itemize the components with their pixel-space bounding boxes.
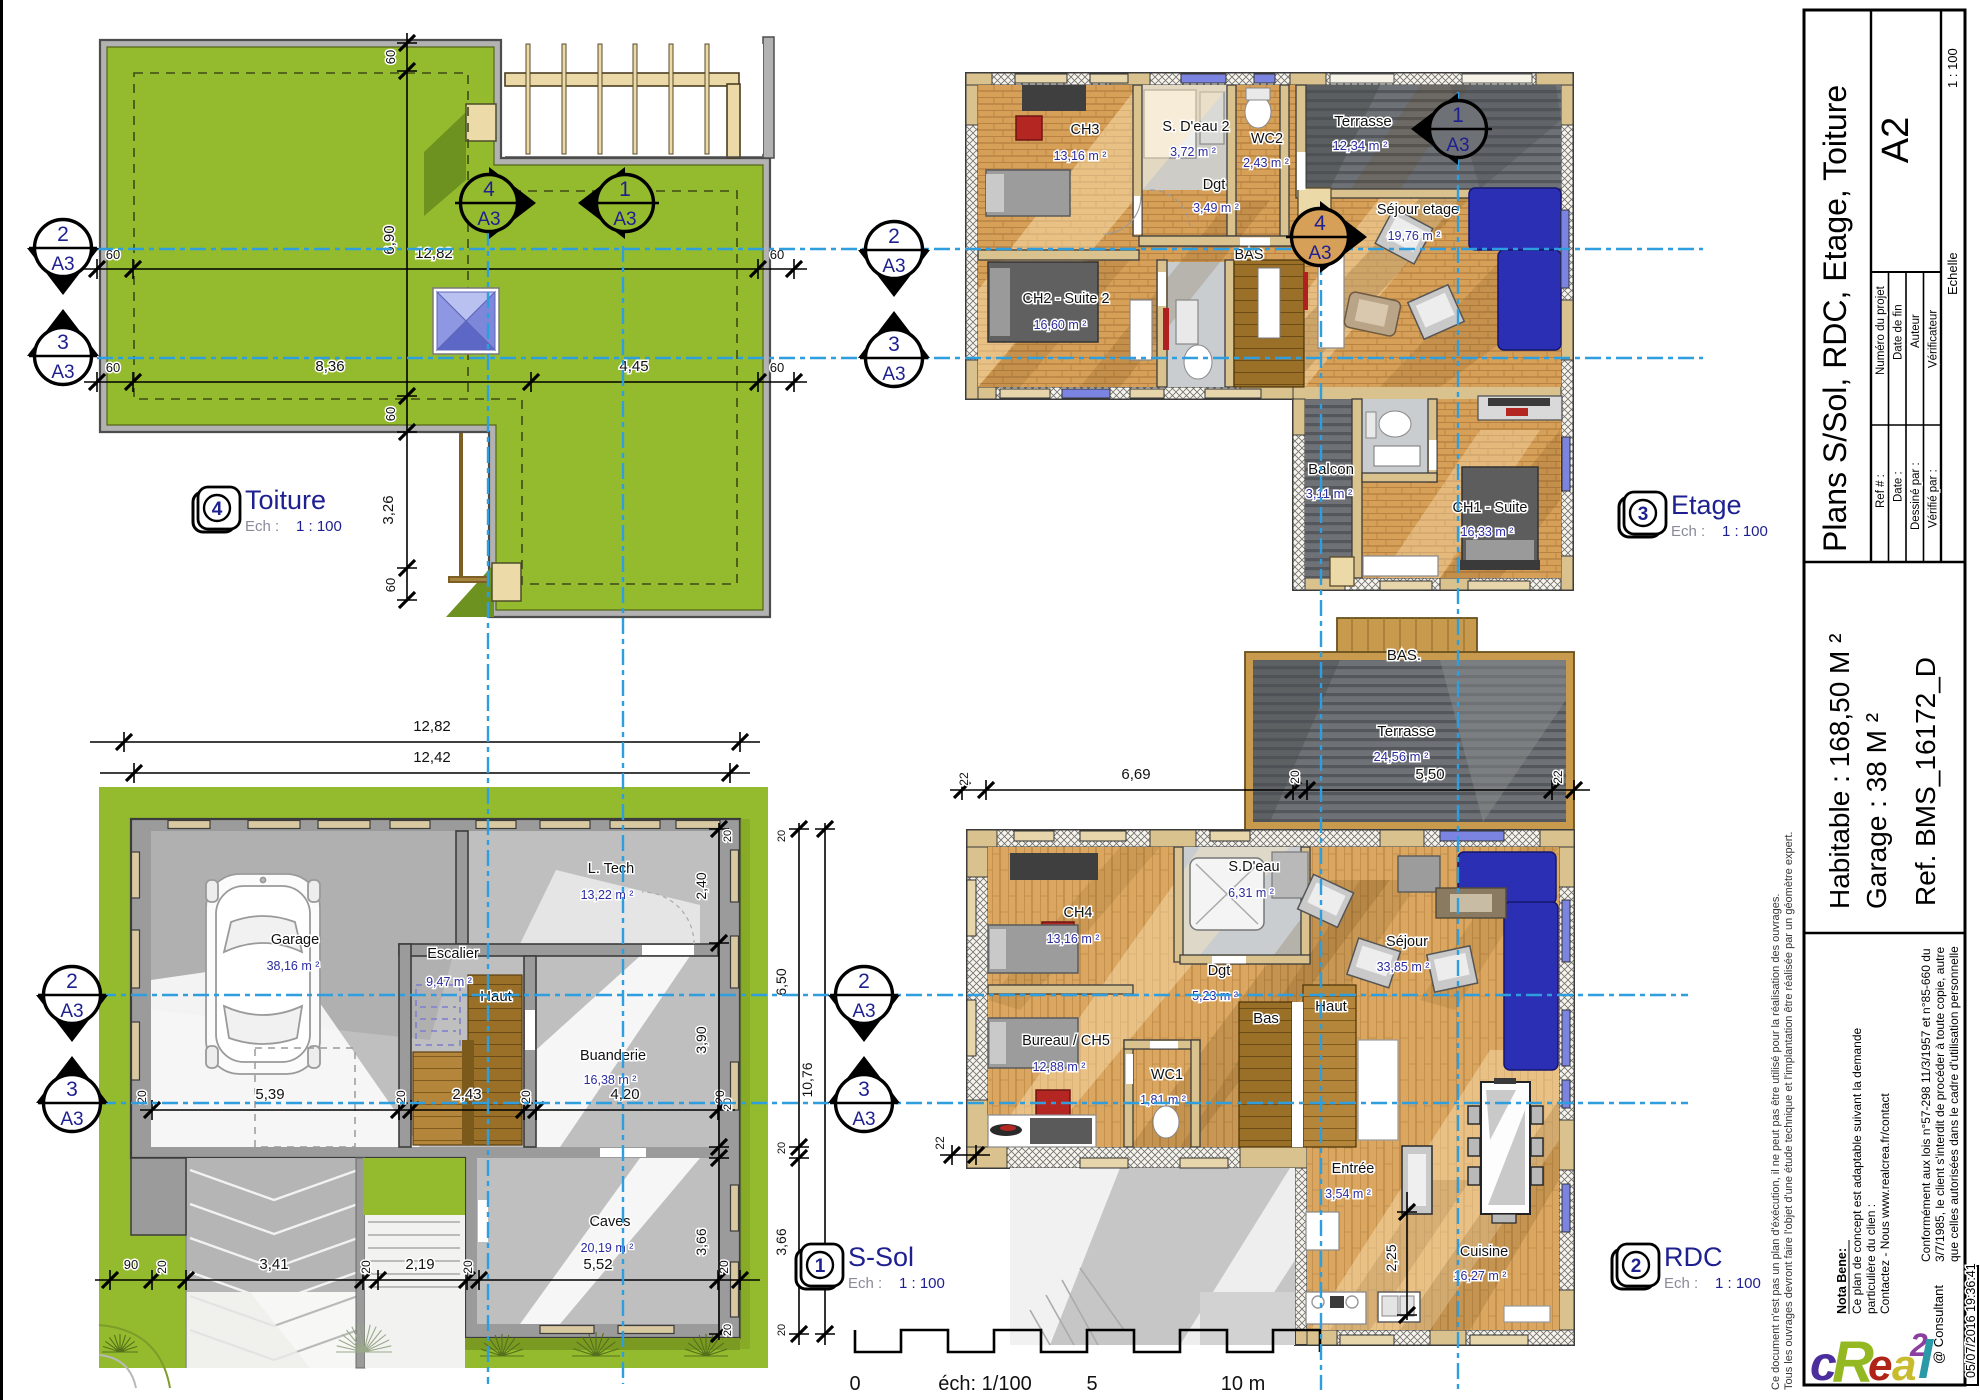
svg-text:Date de fin: Date de fin [1893,304,1905,360]
svg-text:2: 2 [66,970,78,993]
svg-text:Toiture: Toiture [245,485,326,515]
svg-text:3: 3 [888,333,900,356]
svg-text:20,19 m ²: 20,19 m ² [581,1241,634,1255]
svg-text:3,41: 3,41 [259,1256,288,1273]
svg-text:A3: A3 [1446,135,1469,156]
svg-text:Cuisine: Cuisine [1460,1244,1508,1260]
svg-text:16,33 m ²: 16,33 m ² [1461,525,1514,539]
svg-text:Terrasse: Terrasse [1377,723,1435,740]
svg-text:2,40: 2,40 [693,872,709,899]
svg-text:2,43: 2,43 [452,1086,481,1103]
svg-text:Vérifié par :: Vérifié par : [1928,469,1940,528]
svg-text:60: 60 [770,360,784,375]
svg-text:1: 1 [815,1256,826,1277]
svg-text:3,11 m ²: 3,11 m ² [1306,486,1353,501]
svg-text:Buanderie: Buanderie [580,1048,646,1064]
svg-text:2: 2 [888,225,900,248]
svg-text:Bureau / CH5: Bureau / CH5 [1022,1033,1110,1049]
svg-text:13,22 m ²: 13,22 m ² [581,888,634,902]
svg-text:Habitable : 168,50 M ²: Habitable : 168,50 M ² [1824,634,1855,910]
svg-text:A3: A3 [613,209,636,230]
svg-text:Ce plan de concept est adaptab: Ce plan de concept est adaptable suivant… [1850,1027,1864,1314]
svg-text:A3: A3 [852,1109,875,1130]
svg-text:12,34 m ²: 12,34 m ² [1333,138,1389,153]
svg-text:4: 4 [483,178,495,201]
svg-text:20: 20 [776,1324,788,1336]
svg-text:3,90: 3,90 [693,1026,709,1053]
svg-text:A3: A3 [852,1001,875,1022]
svg-text:Bas: Bas [1253,1010,1279,1027]
svg-text:4: 4 [212,499,223,520]
svg-text:Numéro du projet: Numéro du projet [1875,285,1887,375]
svg-text:22: 22 [933,1136,947,1150]
svg-text:Garage : 38 M ²: Garage : 38 M ² [1861,713,1892,909]
svg-text:que celles autorisées dans le: que celles autorisées dans le cadre d'ut… [1947,946,1961,1262]
svg-text:20: 20 [776,1142,788,1154]
svg-text:A3: A3 [51,362,74,383]
svg-text:A2: A2 [1875,117,1917,163]
svg-text:A3: A3 [60,1109,83,1130]
svg-text:Escalier: Escalier [427,946,479,962]
svg-text:3: 3 [66,1078,78,1101]
svg-text:Echelle: Echelle [1945,252,1960,295]
svg-text:4: 4 [1314,212,1326,235]
svg-text:22: 22 [1551,770,1565,784]
svg-text:A3: A3 [51,254,74,275]
svg-text:3,66: 3,66 [773,1228,789,1255]
svg-text:6,90: 6,90 [381,225,398,254]
svg-text:BAS.: BAS. [1387,647,1421,664]
svg-text:20: 20 [359,1260,373,1274]
svg-text:6,50: 6,50 [773,968,789,995]
svg-text:16,60 m ²: 16,60 m ² [1034,318,1087,332]
svg-text:Séjour: Séjour [1386,934,1428,950]
svg-text:Date :: Date : [1893,471,1905,502]
svg-text:16,38 m ²: 16,38 m ² [584,1073,637,1087]
svg-text:12,88 m ²: 12,88 m ² [1033,1060,1086,1074]
svg-text:Dgt: Dgt [1203,177,1226,193]
svg-text:05/07/2016 19:36:41: 05/07/2016 19:36:41 [1964,1263,1978,1378]
svg-text:WC2: WC2 [1251,131,1283,147]
svg-text:24,56 m ²: 24,56 m ² [1374,749,1430,764]
svg-text:0: 0 [849,1373,860,1395]
svg-text:2,43 m ²: 2,43 m ² [1243,156,1289,170]
svg-text:3: 3 [57,331,69,354]
svg-text:6,69: 6,69 [1121,766,1150,783]
svg-text:2: 2 [858,970,870,993]
svg-text:1 : 100: 1 : 100 [1715,1275,1761,1292]
svg-text:20: 20 [461,1260,475,1274]
svg-text:19,76 m ²: 19,76 m ² [1388,229,1441,243]
svg-text:@ Consultant: @ Consultant [1931,1285,1946,1364]
svg-text:3,66: 3,66 [693,1228,709,1255]
svg-text:Ech :: Ech : [848,1275,882,1292]
svg-text:A3: A3 [882,364,905,385]
svg-text:Balcon: Balcon [1308,461,1354,478]
svg-text:60: 60 [106,360,120,375]
svg-text:3: 3 [1638,504,1649,525]
svg-text:8,36: 8,36 [315,358,344,375]
svg-text:L. Tech: L. Tech [588,861,635,877]
svg-text:CH1 - Suite: CH1 - Suite [1453,500,1528,516]
svg-text:particulière du clien :: particulière du clien : [1864,1204,1878,1314]
svg-text:Garage: Garage [271,932,319,948]
svg-text:3: 3 [858,1078,870,1101]
svg-text:Ech :: Ech : [1671,523,1705,540]
svg-text:22: 22 [957,772,971,786]
svg-text:1 : 100: 1 : 100 [296,518,342,535]
svg-text:A3: A3 [1308,243,1331,264]
svg-text:12,42: 12,42 [413,749,451,766]
svg-text:12,82: 12,82 [413,718,451,735]
svg-text:20: 20 [135,1090,149,1104]
svg-text:13,16 m ²: 13,16 m ² [1047,932,1100,946]
svg-text:Conformément aux lois n°57-298: Conformément aux lois n°57-298 11/3/1957… [1919,948,1933,1262]
svg-text:20: 20 [394,1090,408,1104]
svg-text:20: 20 [776,830,788,842]
svg-text:20: 20 [1288,770,1302,784]
svg-text:A3: A3 [477,209,500,230]
svg-text:90: 90 [124,1257,138,1272]
svg-text:12,82: 12,82 [415,245,453,262]
svg-text:20: 20 [155,1260,169,1274]
svg-text:3/7/1985, le client s'interdit: 3/7/1985, le client s'interdit de procéd… [1933,947,1947,1262]
svg-text:3,49 m ²: 3,49 m ² [1193,201,1239,215]
svg-text:WC1: WC1 [1151,1067,1183,1083]
svg-text:1: 1 [1452,104,1464,127]
svg-text:CH2 - Suite 2: CH2 - Suite 2 [1022,291,1109,307]
svg-text:38,16 m ²: 38,16 m ² [267,959,320,973]
svg-text:2: 2 [57,223,69,246]
svg-text:2,19: 2,19 [405,1256,434,1273]
svg-text:33,85 m ²: 33,85 m ² [1377,960,1430,974]
svg-text:Terrasse: Terrasse [1334,113,1392,130]
svg-text:10 m: 10 m [1221,1373,1265,1395]
svg-text:Tous les ouvrages devront fair: Tous les ouvrages devront faire l'objet … [1783,832,1795,1390]
svg-text:S.D'eau: S.D'eau [1228,859,1279,875]
svg-text:2,25: 2,25 [1383,1244,1399,1271]
svg-text:1,81 m ²: 1,81 m ² [1140,1093,1186,1107]
svg-text:Etage: Etage [1671,490,1742,520]
svg-text:RDC: RDC [1664,1242,1723,1272]
svg-text:1 : 100: 1 : 100 [1722,523,1768,540]
svg-text:60: 60 [383,407,398,421]
svg-text:CH3: CH3 [1070,122,1099,138]
svg-text:Caves: Caves [589,1214,630,1230]
svg-text:Ech :: Ech : [1664,1275,1698,1292]
svg-text:5,39: 5,39 [255,1086,284,1103]
svg-text:20: 20 [722,1324,734,1336]
svg-text:Haut: Haut [480,988,513,1005]
svg-text:6,31 m ²: 6,31 m ² [1228,886,1274,900]
svg-text:13,16 m ²: 13,16 m ² [1054,149,1107,163]
svg-text:3,72 m ²: 3,72 m ² [1170,145,1216,159]
svg-text:S. D'eau 2: S. D'eau 2 [1162,119,1229,135]
svg-text:Ech :: Ech : [245,518,279,535]
svg-text:5: 5 [1086,1373,1097,1395]
svg-text:Plans S/Sol, RDC, Etage, Toitu: Plans S/Sol, RDC, Etage, Toiture [1817,85,1853,552]
svg-text:A3: A3 [60,1001,83,1022]
svg-text:l: l [1918,1330,1934,1390]
svg-text:éch: 1/100: éch: 1/100 [938,1373,1031,1395]
svg-text:4,20: 4,20 [610,1086,639,1103]
svg-text:Ref. BMS_16172_D: Ref. BMS_16172_D [1910,657,1941,906]
svg-text:Dessiné par :: Dessiné par : [1910,462,1922,530]
svg-text:Dgt: Dgt [1208,963,1231,979]
svg-text:10,76: 10,76 [799,1062,815,1097]
svg-text:Auteur: Auteur [1910,314,1922,348]
svg-text:5,52: 5,52 [583,1256,612,1273]
svg-text:3,26: 3,26 [380,495,397,524]
svg-text:Entrée: Entrée [1332,1161,1375,1177]
svg-text:Nota Bene:: Nota Bene: [1835,1248,1849,1314]
svg-text:20: 20 [519,1090,533,1104]
svg-text:1 : 100: 1 : 100 [1945,48,1960,88]
svg-text:60: 60 [383,50,398,64]
svg-text:16,27 m ²: 16,27 m ² [1454,1269,1507,1283]
svg-text:Ce document n'est pas un plan: Ce document n'est pas un plan d'éxécutio… [1770,894,1782,1390]
svg-text:3,54 m ²: 3,54 m ² [1325,1187,1371,1201]
svg-text:Séjour etage: Séjour etage [1377,202,1459,218]
svg-text:60: 60 [383,578,398,592]
svg-text:Vérificateur: Vérificateur [1928,310,1940,368]
svg-text:2: 2 [1631,1256,1642,1277]
svg-text:A3: A3 [882,256,905,277]
svg-text:1: 1 [619,178,631,201]
svg-text:20: 20 [722,830,734,842]
svg-text:Contactez - Nous www.realcrea.: Contactez - Nous www.realcrea.fr/contact [1878,1093,1892,1314]
svg-text:Ref # :: Ref # : [1875,474,1887,508]
svg-text:e: e [1868,1341,1892,1390]
svg-text:CH4: CH4 [1063,905,1092,921]
svg-text:S-Sol: S-Sol [848,1242,914,1272]
svg-text:1 : 100: 1 : 100 [899,1275,945,1292]
svg-text:9,47 m ²: 9,47 m ² [426,975,472,989]
svg-text:5,50: 5,50 [1415,766,1444,783]
